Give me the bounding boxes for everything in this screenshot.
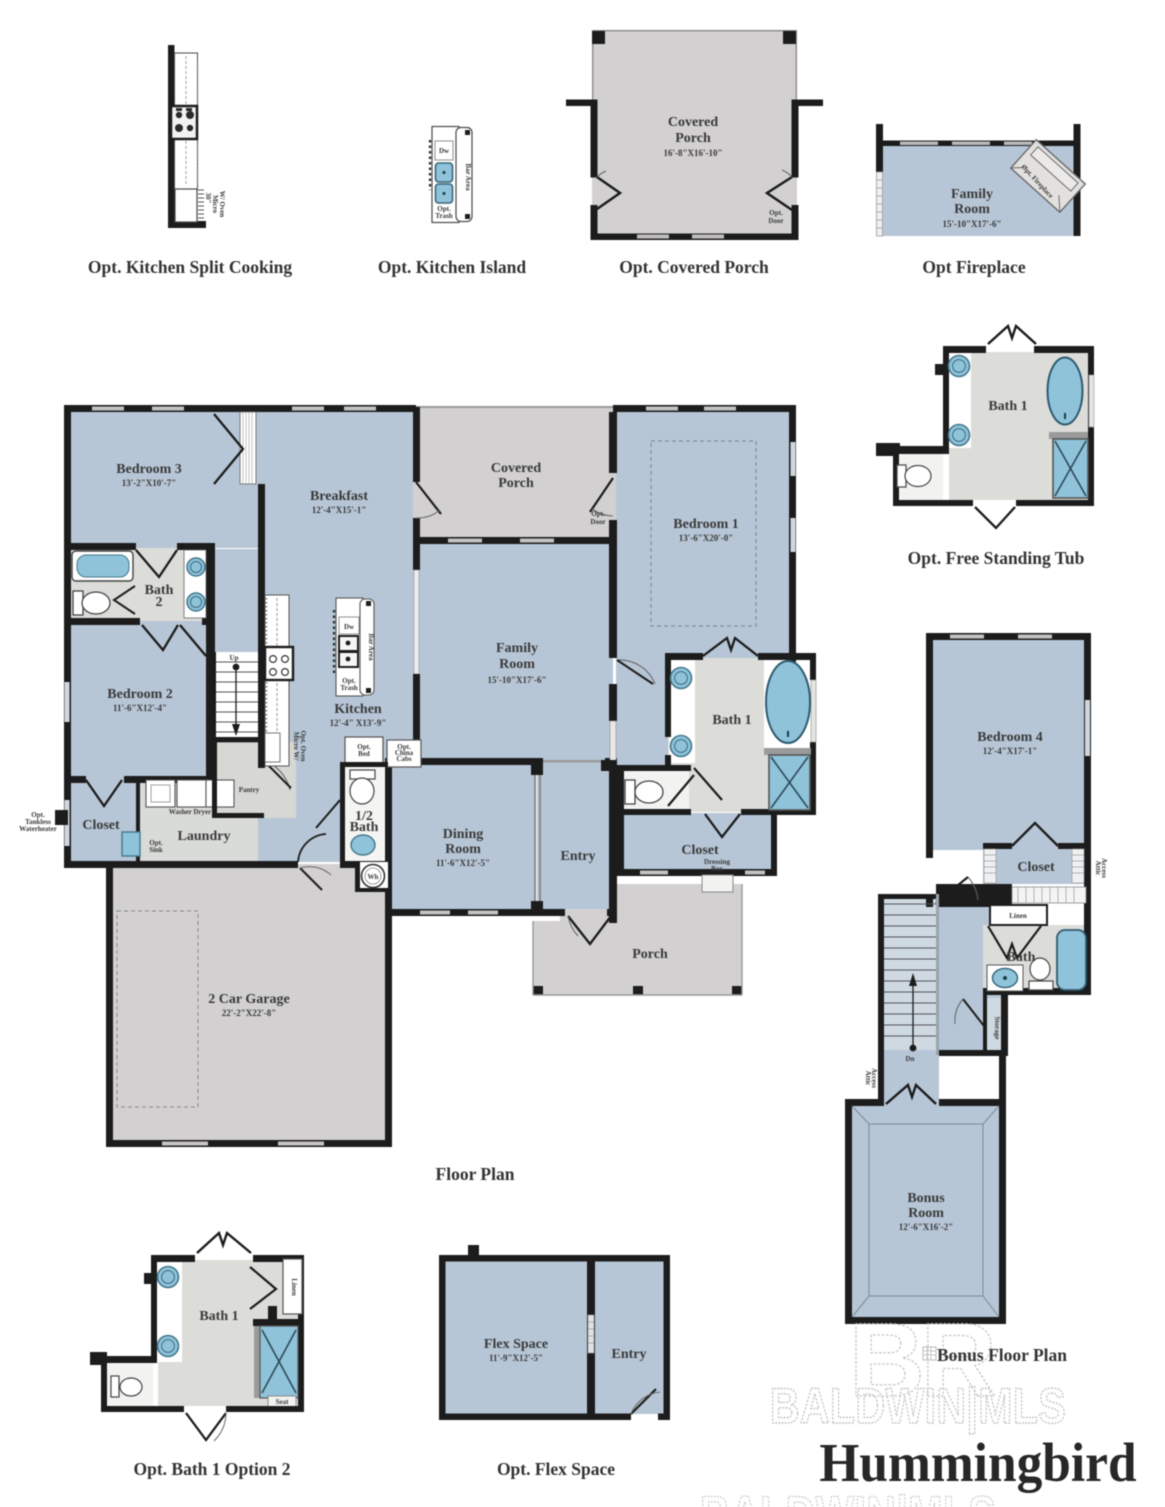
- svg-text:Room: Room: [445, 842, 481, 857]
- svg-text:13'-2"X10'-7": 13'-2"X10'-7": [122, 478, 177, 488]
- svg-text:Bar Area: Bar Area: [367, 633, 375, 661]
- svg-text:Micro W/: Micro W/: [292, 732, 300, 762]
- svg-text:Closet: Closet: [82, 818, 120, 833]
- svg-text:Access: Access: [1100, 858, 1108, 878]
- svg-text:Opt. Free Standing Tub: Opt. Free Standing Tub: [908, 548, 1085, 568]
- svg-text:Dn: Dn: [906, 1055, 915, 1063]
- svg-text:Waterheater: Waterheater: [19, 825, 57, 833]
- svg-text:Kitchen: Kitchen: [334, 702, 382, 717]
- svg-text:Room: Room: [499, 657, 535, 672]
- svg-text:11'-6"X12'-4": 11'-6"X12'-4": [113, 703, 167, 713]
- svg-text:Opt.: Opt.: [591, 510, 605, 518]
- svg-text:Opt. Kitchen Island: Opt. Kitchen Island: [378, 257, 527, 277]
- svg-text:Access: Access: [870, 1068, 878, 1088]
- svg-text:Family: Family: [496, 641, 538, 656]
- svg-text:Closet: Closet: [1017, 860, 1055, 875]
- svg-text:Bath: Bath: [1007, 950, 1036, 965]
- svg-text:Bonus Floor Plan: Bonus Floor Plan: [937, 1345, 1067, 1365]
- svg-text:Bedroom 4: Bedroom 4: [977, 730, 1042, 745]
- svg-text:Breakfast: Breakfast: [310, 489, 368, 504]
- svg-text:Bedroom 1: Bedroom 1: [673, 517, 738, 532]
- svg-text:Porch: Porch: [632, 947, 668, 962]
- svg-text:Trash: Trash: [435, 212, 452, 220]
- svg-text:Opt. Kitchen Split Cooking: Opt. Kitchen Split Cooking: [88, 257, 292, 277]
- svg-text:Covered: Covered: [668, 115, 718, 130]
- svg-text:Bath: Bath: [350, 820, 379, 835]
- svg-text:W/ Oven: W/ Oven: [218, 191, 226, 218]
- svg-text:Dw: Dw: [439, 147, 450, 155]
- svg-text:Opt. Oven: Opt. Oven: [299, 730, 307, 761]
- svg-text:Bedroom 2: Bedroom 2: [107, 687, 172, 702]
- svg-text:Pantry: Pantry: [239, 786, 260, 794]
- svg-text:Opt.: Opt.: [769, 209, 783, 217]
- svg-text:Bath 1: Bath 1: [199, 1309, 238, 1324]
- svg-text:12'-4"X15'-1": 12'-4"X15'-1": [312, 505, 367, 515]
- svg-text:Storage: Storage: [993, 1017, 1001, 1040]
- svg-text:12'-6"X16'-2": 12'-6"X16'-2": [899, 1222, 954, 1232]
- svg-text:Porch: Porch: [675, 131, 711, 146]
- svg-text:12'-4"X17'-1": 12'-4"X17'-1": [983, 746, 1038, 756]
- svg-text:Room: Room: [908, 1206, 944, 1221]
- svg-text:Seat: Seat: [276, 1398, 290, 1406]
- svg-text:Wh: Wh: [368, 873, 379, 881]
- svg-text:12'-4" X13'-9": 12'-4" X13'-9": [330, 718, 387, 728]
- svg-text:Washer Dryer: Washer Dryer: [169, 808, 211, 816]
- svg-text:16'-8"X16'-10": 16'-8"X16'-10": [664, 148, 723, 158]
- svg-text:Flex Space: Flex Space: [484, 1337, 548, 1352]
- svg-text:Opt. Flex Space: Opt. Flex Space: [497, 1459, 615, 1479]
- svg-text:BALDWIN|MLS: BALDWIN|MLS: [770, 1378, 1066, 1434]
- svg-text:Up: Up: [230, 654, 239, 662]
- svg-text:13'-6"X20'-0": 13'-6"X20'-0": [679, 533, 734, 543]
- svg-text:Hummingbird: Hummingbird: [819, 1432, 1137, 1493]
- svg-text:Entry: Entry: [612, 1347, 647, 1362]
- svg-text:Cabs: Cabs: [396, 755, 411, 763]
- svg-text:Dw: Dw: [344, 623, 355, 631]
- svg-text:Opt. Bath 1 Option 2: Opt. Bath 1 Option 2: [133, 1459, 290, 1479]
- svg-text:Room: Room: [954, 202, 990, 217]
- svg-text:15'-10"X17'-6": 15'-10"X17'-6": [943, 219, 1002, 229]
- svg-text:Micro: Micro: [211, 195, 219, 214]
- svg-text:Bath 1: Bath 1: [712, 713, 751, 728]
- svg-text:2: 2: [156, 595, 163, 610]
- svg-text:15'-10"X17'-6": 15'-10"X17'-6": [488, 675, 547, 685]
- svg-text:Trash: Trash: [340, 684, 357, 692]
- svg-text:Entry: Entry: [561, 849, 596, 864]
- svg-text:Covered: Covered: [491, 461, 541, 476]
- svg-text:Door: Door: [768, 217, 783, 225]
- svg-text:Opt. Covered Porch: Opt. Covered Porch: [619, 257, 769, 277]
- svg-text:Laundry: Laundry: [178, 829, 231, 844]
- svg-text:Family: Family: [951, 187, 993, 202]
- svg-text:Linen: Linen: [1009, 912, 1027, 920]
- svg-text:Floor Plan: Floor Plan: [436, 1164, 515, 1184]
- svg-text:Bar Area: Bar Area: [464, 163, 472, 191]
- svg-text:Bed: Bed: [358, 750, 370, 758]
- svg-text:Box: Box: [711, 865, 723, 873]
- svg-text:2 Car Garage: 2 Car Garage: [208, 992, 289, 1007]
- svg-text:11'-6"X12'-5": 11'-6"X12'-5": [436, 858, 490, 868]
- svg-text:Opt Fireplace: Opt Fireplace: [922, 257, 1025, 277]
- svg-text:Sink: Sink: [149, 846, 163, 854]
- svg-text:Linen: Linen: [290, 1278, 298, 1296]
- svg-text:11'-9"X12'-5": 11'-9"X12'-5": [489, 1353, 543, 1363]
- svg-text:Bath 1: Bath 1: [988, 399, 1027, 414]
- svg-text:Door: Door: [590, 518, 605, 526]
- svg-text:Closet: Closet: [681, 843, 719, 858]
- svg-text:Porch: Porch: [498, 476, 534, 491]
- svg-text:Dining: Dining: [443, 827, 483, 842]
- svg-text:30": 30": [204, 193, 212, 204]
- svg-text:22'-2"X22'-8": 22'-2"X22'-8": [222, 1008, 277, 1018]
- svg-text:Bedroom 3: Bedroom 3: [116, 462, 181, 477]
- svg-text:Bonus: Bonus: [907, 1191, 945, 1206]
